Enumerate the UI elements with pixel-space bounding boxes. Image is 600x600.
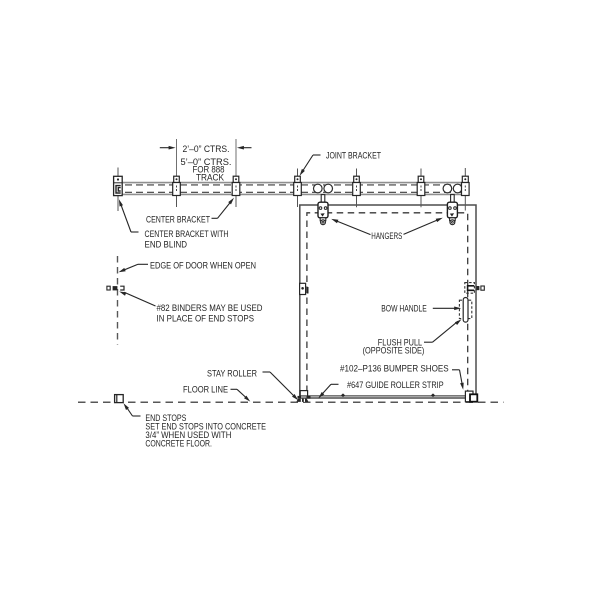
- svg-text:JOINT BRACKET: JOINT BRACKET: [326, 150, 381, 161]
- svg-text:#647 GUIDE ROLLER STRIP: #647 GUIDE ROLLER STRIP: [347, 379, 444, 390]
- svg-text:EDGE OF DOOR WHEN OPEN: EDGE OF DOOR WHEN OPEN: [150, 259, 256, 270]
- svg-text:CONCRETE FLOOR.: CONCRETE FLOOR.: [145, 438, 212, 449]
- svg-text:FLOOR LINE: FLOOR LINE: [183, 384, 228, 395]
- svg-text:2’–0” CTRS.: 2’–0” CTRS.: [183, 143, 230, 154]
- svg-text:STAY ROLLER: STAY ROLLER: [207, 368, 257, 379]
- svg-text:IN PLACE OF END STOPS: IN PLACE OF END STOPS: [157, 313, 255, 324]
- svg-text:#102–P136 BUMPER SHOES: #102–P136 BUMPER SHOES: [340, 363, 449, 374]
- svg-text:END BLIND: END BLIND: [145, 238, 188, 249]
- svg-text:(OPPOSITE SIDE): (OPPOSITE SIDE): [363, 344, 425, 355]
- svg-text:HANGERS: HANGERS: [371, 230, 402, 241]
- svg-text:CENTER BRACKET: CENTER BRACKET: [146, 214, 210, 225]
- svg-text:TRACK: TRACK: [196, 172, 225, 183]
- svg-text:BOW HANDLE: BOW HANDLE: [381, 303, 427, 314]
